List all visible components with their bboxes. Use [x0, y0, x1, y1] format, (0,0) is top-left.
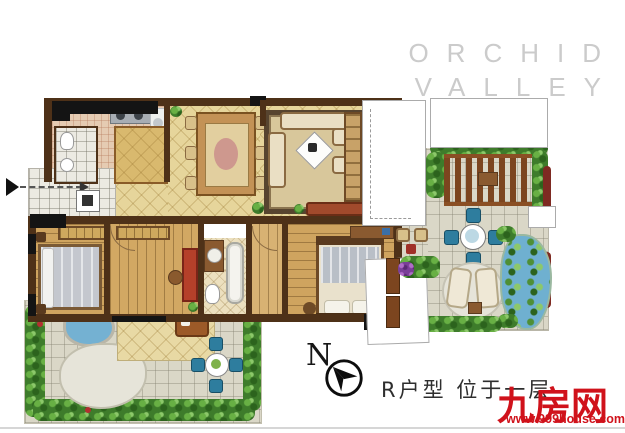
wall: [282, 224, 288, 316]
wall: [44, 98, 52, 182]
red-flower: [85, 407, 91, 413]
wall: [246, 224, 252, 316]
wc-toilet: [60, 132, 74, 150]
purple-flower-pot: [398, 262, 414, 276]
garden-chair: [191, 358, 205, 372]
desk-red: [182, 248, 198, 302]
wc-basin: [60, 158, 74, 172]
terrace-plants: [426, 152, 446, 198]
wicker-chair: [396, 228, 410, 242]
wall: [104, 224, 110, 316]
dining-centerpiece: [214, 138, 238, 170]
potted-plant: [252, 202, 264, 214]
bathtub: [226, 242, 244, 304]
potted-plant: [294, 204, 304, 214]
wall-window: [112, 316, 166, 322]
nightstand: [36, 304, 46, 314]
wall-window: [28, 234, 36, 254]
neighbor-outline-dashed: [370, 109, 411, 219]
sofa: [268, 132, 286, 188]
garden-chair: [209, 379, 223, 393]
entry-arrow-icon: [6, 178, 19, 196]
dining-chair: [185, 116, 197, 130]
terrace-plants: [496, 226, 516, 242]
pergola-table: [478, 172, 498, 186]
potted-plant: [188, 302, 198, 312]
wall: [260, 100, 266, 126]
kitchen-island: [114, 126, 168, 184]
garden-chair: [229, 358, 243, 372]
toilet: [205, 284, 220, 304]
terrace-table-glass: [465, 229, 479, 243]
floorplan-page: ORCHID VALLEY: [0, 0, 625, 433]
terrace-chair: [466, 208, 481, 223]
entry-path-dashed: [20, 186, 82, 188]
neighbor-outline: [362, 100, 426, 226]
wall: [198, 224, 204, 316]
utility-icon: [82, 195, 93, 206]
wicker-side-table: [406, 244, 416, 254]
wardrobe: [58, 226, 106, 240]
bed-pillow: [42, 248, 54, 308]
garden-bushes: [33, 399, 255, 421]
dresser-decor: [382, 228, 390, 235]
coffee-table-decor: [308, 143, 317, 152]
watermark-site-url: www.999house.com: [506, 412, 625, 426]
planter-box: [386, 258, 400, 294]
wall: [28, 216, 402, 224]
garden-chair: [209, 337, 223, 351]
planter-box: [386, 296, 400, 328]
potted-plant: [170, 106, 182, 117]
dining-chair: [185, 176, 197, 190]
table-plant: [211, 359, 221, 369]
utility-box: [76, 190, 100, 212]
wall: [28, 314, 402, 322]
neighbor-outline: [528, 206, 556, 228]
dining-chair: [185, 146, 197, 160]
bathroom-basin: [207, 248, 222, 263]
neighbor-outline: [430, 98, 548, 148]
wall-window: [28, 294, 36, 316]
dining-table: [196, 112, 256, 196]
wall-window: [30, 214, 66, 228]
desk-chair: [168, 270, 183, 285]
wicker-chair: [414, 228, 428, 242]
lounge-table: [468, 302, 482, 314]
bookshelf: [344, 112, 362, 202]
garden-bushes: [243, 307, 261, 411]
compass-icon: [324, 358, 364, 398]
wall: [164, 100, 170, 182]
nightstand: [36, 232, 46, 242]
brand-line1: ORCHID: [408, 36, 619, 70]
terrace-chair: [444, 230, 459, 245]
brand-logo: ORCHID VALLEY: [408, 36, 619, 104]
